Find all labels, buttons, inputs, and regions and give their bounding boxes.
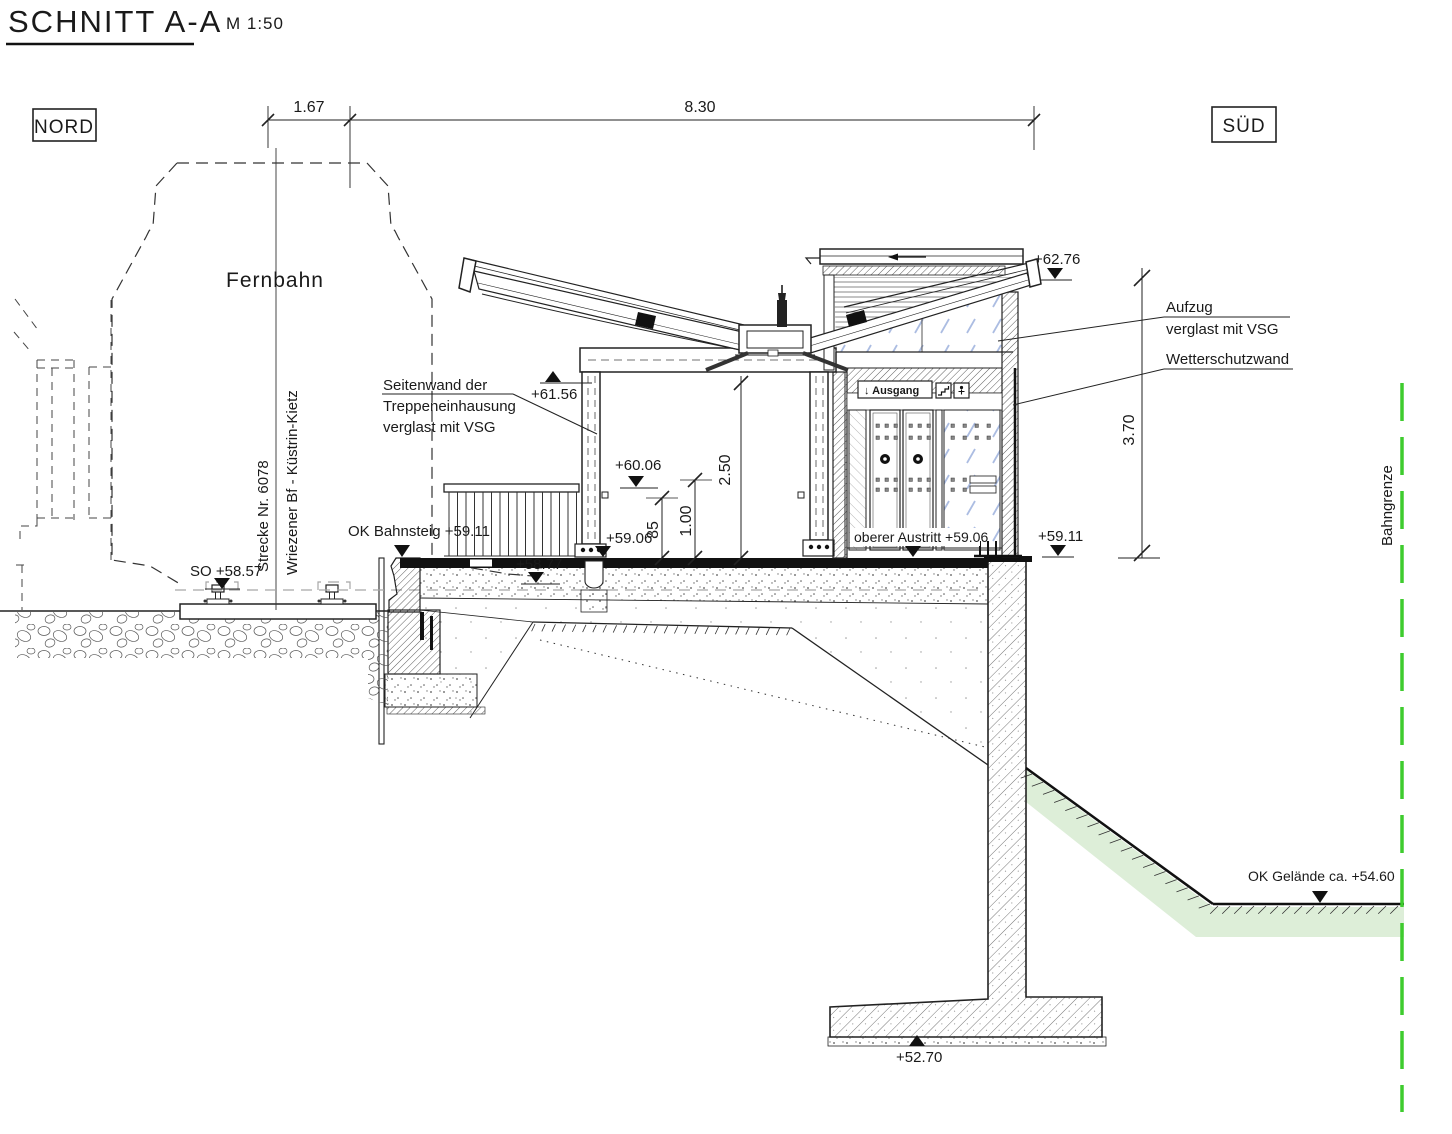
bahngrenze: Bahngrenze [1379,383,1402,1112]
bahngrenze-label: Bahngrenze [1379,465,1396,546]
level-6276: +62.76 [1034,251,1080,268]
level-gelaende: OK Gelände ca. +54.60 [1248,868,1395,884]
compass-south: SÜD [1212,107,1276,142]
level-5270: +52.70 [896,1049,942,1066]
stairs-pictogram-icon [936,383,951,398]
clearance-profile [14,299,111,610]
ground-works: +52.70 OK Gelände ca. +54.60 [368,556,1404,1066]
rail-right [318,585,347,604]
note-aufzug-2: verglast mit VSG [1166,321,1279,338]
platform-fill [425,600,988,762]
level-marker-gelaende [1312,891,1328,903]
ausgang-label: ↓ Ausgang [864,385,919,397]
elevator-corner-post [824,275,834,370]
level-5911: +59.11 [1038,528,1083,545]
level-so: SO +58.57 [190,563,262,580]
level-6006: +60.06 [615,457,661,474]
dim-250: 2.50 [717,454,734,485]
level-5906: +59.06 [606,530,652,547]
drain [585,561,603,588]
platform-level: OK Bahnsteig +59.11 [348,523,490,557]
track-name: Fernbahn [226,269,324,292]
terrain-green-band [1026,770,1404,937]
note-seitenwand-1: Seitenwand der [383,377,487,394]
section-drawing: SCHNITT A-A M 1:50 NORD SÜD 1.67 8.30 [0,0,1452,1134]
level-austritt: oberer Austritt +59.06 [854,529,988,545]
track-line-no: Strecke Nr. 6078 [255,460,272,572]
roof-level: +62.76 [1034,251,1080,280]
note-seitenwand-2: Treppeneinhausung [383,398,516,415]
handrail-level: +60.06 [615,457,661,488]
dim-167: 1.67 [293,99,324,116]
wing-tip-left [459,258,476,292]
dim-830: 8.30 [684,99,715,116]
elevator: ↓ Ausgang [806,249,1083,558]
north-label: NORD [34,117,94,138]
train-outline [112,163,545,584]
note-wetterschutz: Wetterschutzwand [1166,351,1289,368]
lift-height-dimension: 3.70 [1118,268,1160,561]
stair-wall-right [810,372,828,540]
scale-label: M 1:50 [226,14,284,33]
stair-enclosure: 2.50 1.00 85 +61.56 +60.06 +59.06 [531,348,845,565]
top-dimension-chain: 1.67 8.30 [262,99,1040,188]
elevator-wall-left [833,372,847,558]
canopy-mast [777,285,787,327]
austritt-level: oberer Austritt +59.06 [850,528,988,557]
platform-railing [444,484,579,556]
note-seitenwand-3: verglast mit VSG [383,419,496,436]
handrail-bracket-left [602,492,608,498]
dim-370: 3.70 [1121,414,1138,445]
note-aufzug: Aufzug verglast mit VSG [998,299,1290,341]
leader-wetterschutz [1013,369,1164,405]
rail-left [204,585,233,604]
stair-wall-left [582,372,600,544]
leader-aufzug [998,317,1164,341]
drawing-sheet: SCHNITT A-A M 1:50 NORD SÜD 1.67 8.30 [0,0,1452,1134]
dim-100: 1.00 [678,505,695,536]
foundation-subbase [385,674,477,707]
level-6156: +61.56 [531,386,577,403]
sleeper [180,604,376,619]
so-level: SO +58.57 [190,563,262,589]
canopy-left-wing [459,258,747,351]
level-platform: OK Bahnsteig +59.11 [348,523,490,540]
terrain-slope [1026,768,1213,904]
note-aufzug-1: Aufzug [1166,299,1213,316]
south-label: SÜD [1222,116,1265,137]
note-wetterschutzwand: Wetterschutzwand [1013,351,1293,405]
level-5877: +58.77 [516,556,562,573]
wall-top-level: +59.11 [1038,528,1083,557]
page-title: SCHNITT A-A [8,4,222,39]
handrail-bracket-right [798,492,804,498]
compass-north: NORD [33,109,96,141]
track-route: Wriezener Bf - Küstrin-Kietz [284,390,301,575]
blinding-layer [828,1037,1106,1046]
title-block: SCHNITT A-A M 1:50 [6,4,284,44]
